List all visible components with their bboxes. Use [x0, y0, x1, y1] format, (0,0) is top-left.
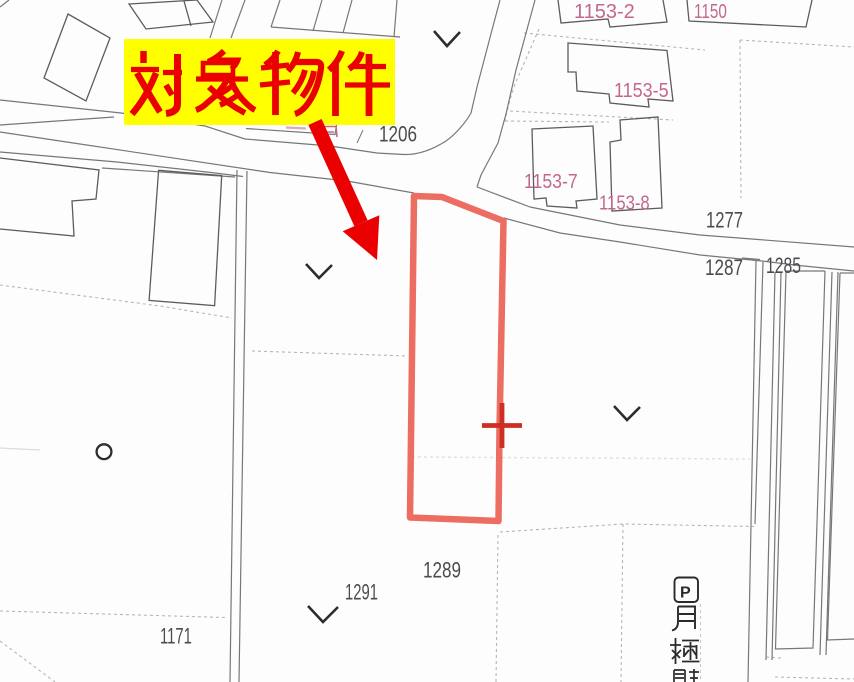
svg-text:1291: 1291	[345, 580, 378, 605]
svg-text:1153-8: 1153-8	[599, 191, 650, 214]
svg-text:1287: 1287	[705, 256, 743, 281]
svg-text:1171: 1171	[160, 624, 192, 649]
svg-text:1150: 1150	[694, 0, 727, 22]
svg-text:1206: 1206	[379, 123, 417, 148]
svg-text:1285: 1285	[766, 255, 801, 279]
svg-text:1153-5: 1153-5	[614, 80, 669, 102]
svg-text:P: P	[680, 585, 691, 602]
svg-text:1153-7: 1153-7	[524, 170, 578, 192]
svg-text:1153-2: 1153-2	[574, 1, 635, 23]
svg-text:1277: 1277	[706, 208, 743, 233]
svg-text:1289: 1289	[423, 559, 461, 584]
